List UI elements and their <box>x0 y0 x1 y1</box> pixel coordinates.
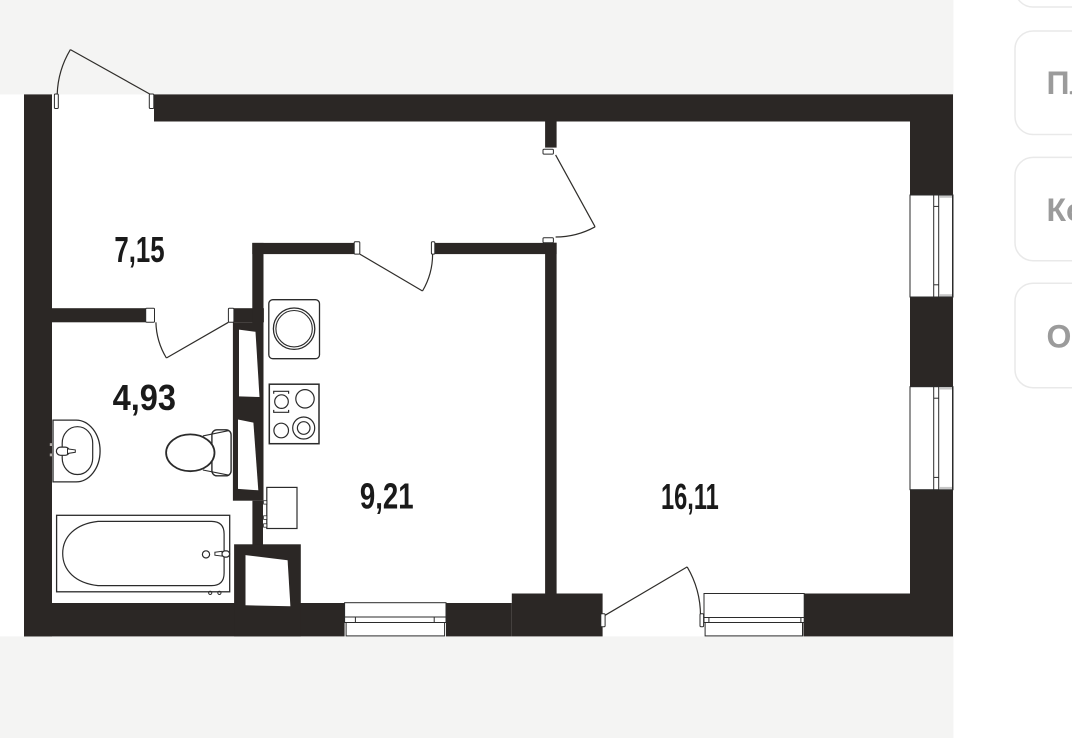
svg-text:4,93: 4,93 <box>113 377 176 418</box>
svg-text:Отделка: Отделка <box>1047 318 1072 354</box>
svg-text:Планировка: Планировка <box>1047 65 1072 101</box>
svg-text:9,21: 9,21 <box>360 475 414 516</box>
svg-text:7,15: 7,15 <box>114 229 164 270</box>
svg-text:16,11: 16,11 <box>661 476 719 517</box>
svg-text:Комнаты: Комнаты <box>1047 192 1072 228</box>
